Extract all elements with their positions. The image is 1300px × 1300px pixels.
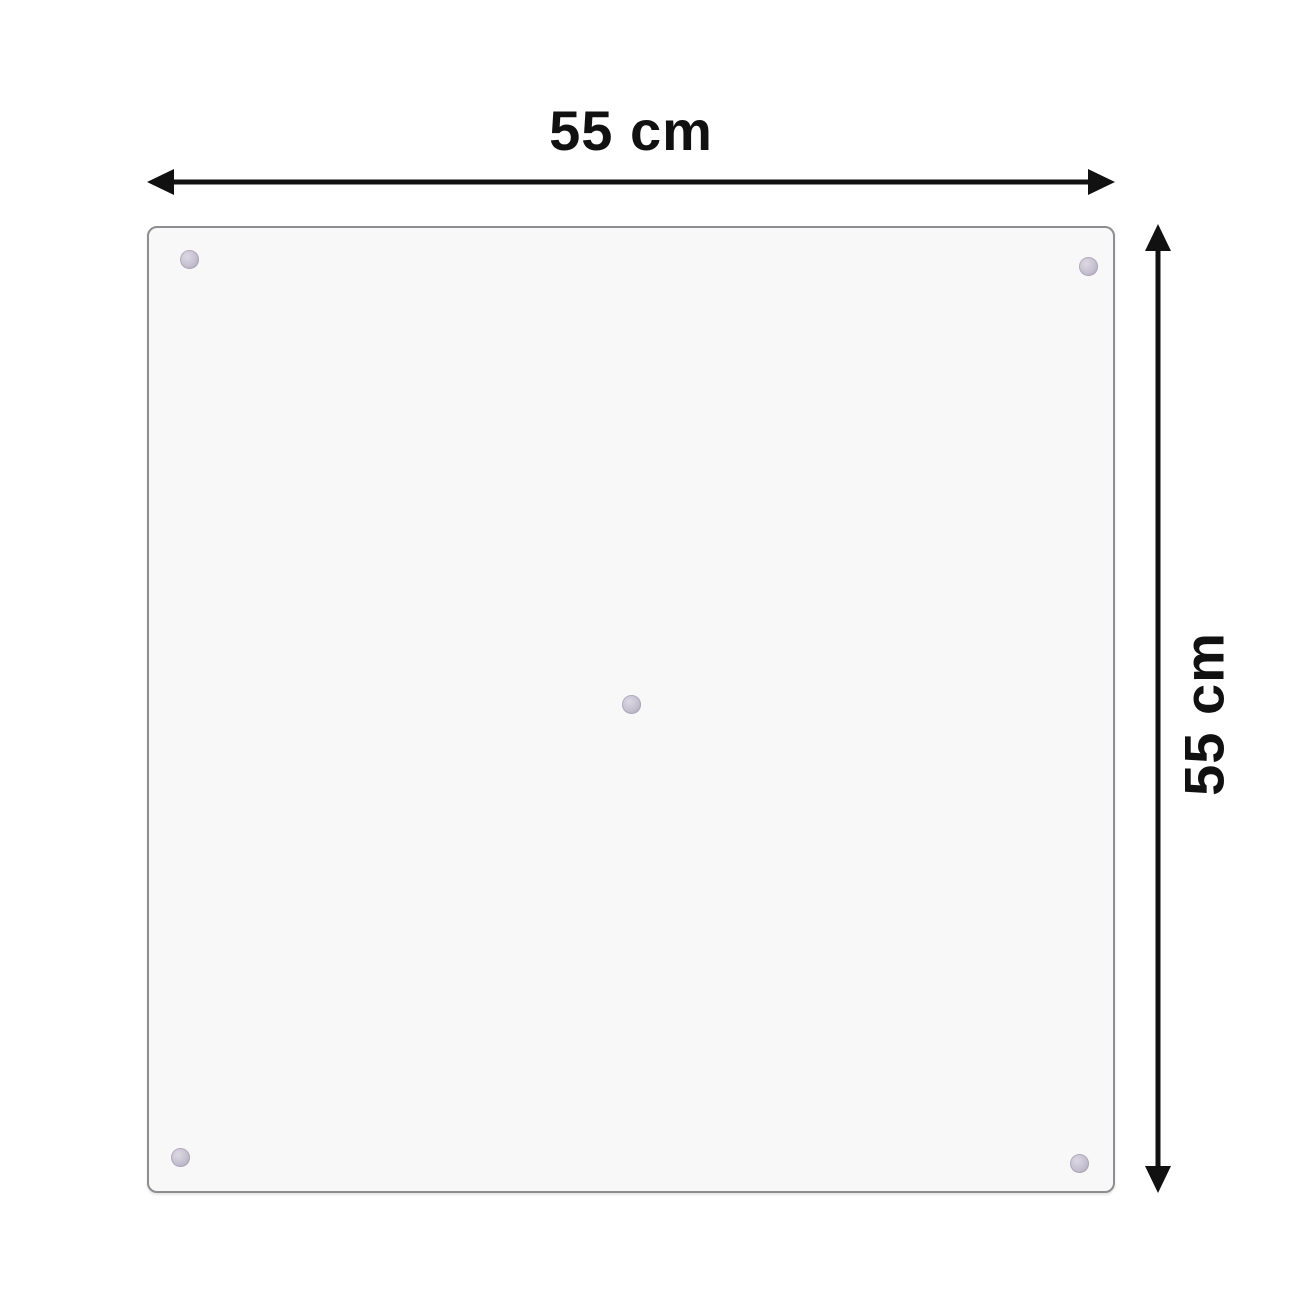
glass-panel — [147, 226, 1115, 1193]
suction-cup-top-left-icon — [180, 250, 199, 269]
width-dimension-label: 55 cm — [147, 98, 1115, 163]
dimension-diagram: 55 cm 55 cm — [0, 0, 1300, 1300]
suction-cup-bottom-right-icon — [1070, 1154, 1089, 1173]
suction-cup-top-right-icon — [1079, 257, 1098, 276]
height-dimension-label: 55 cm — [1172, 632, 1237, 796]
suction-cup-center-icon — [622, 695, 641, 714]
width-dimension-arrow — [147, 160, 1115, 204]
suction-cup-bottom-left-icon — [171, 1148, 190, 1167]
